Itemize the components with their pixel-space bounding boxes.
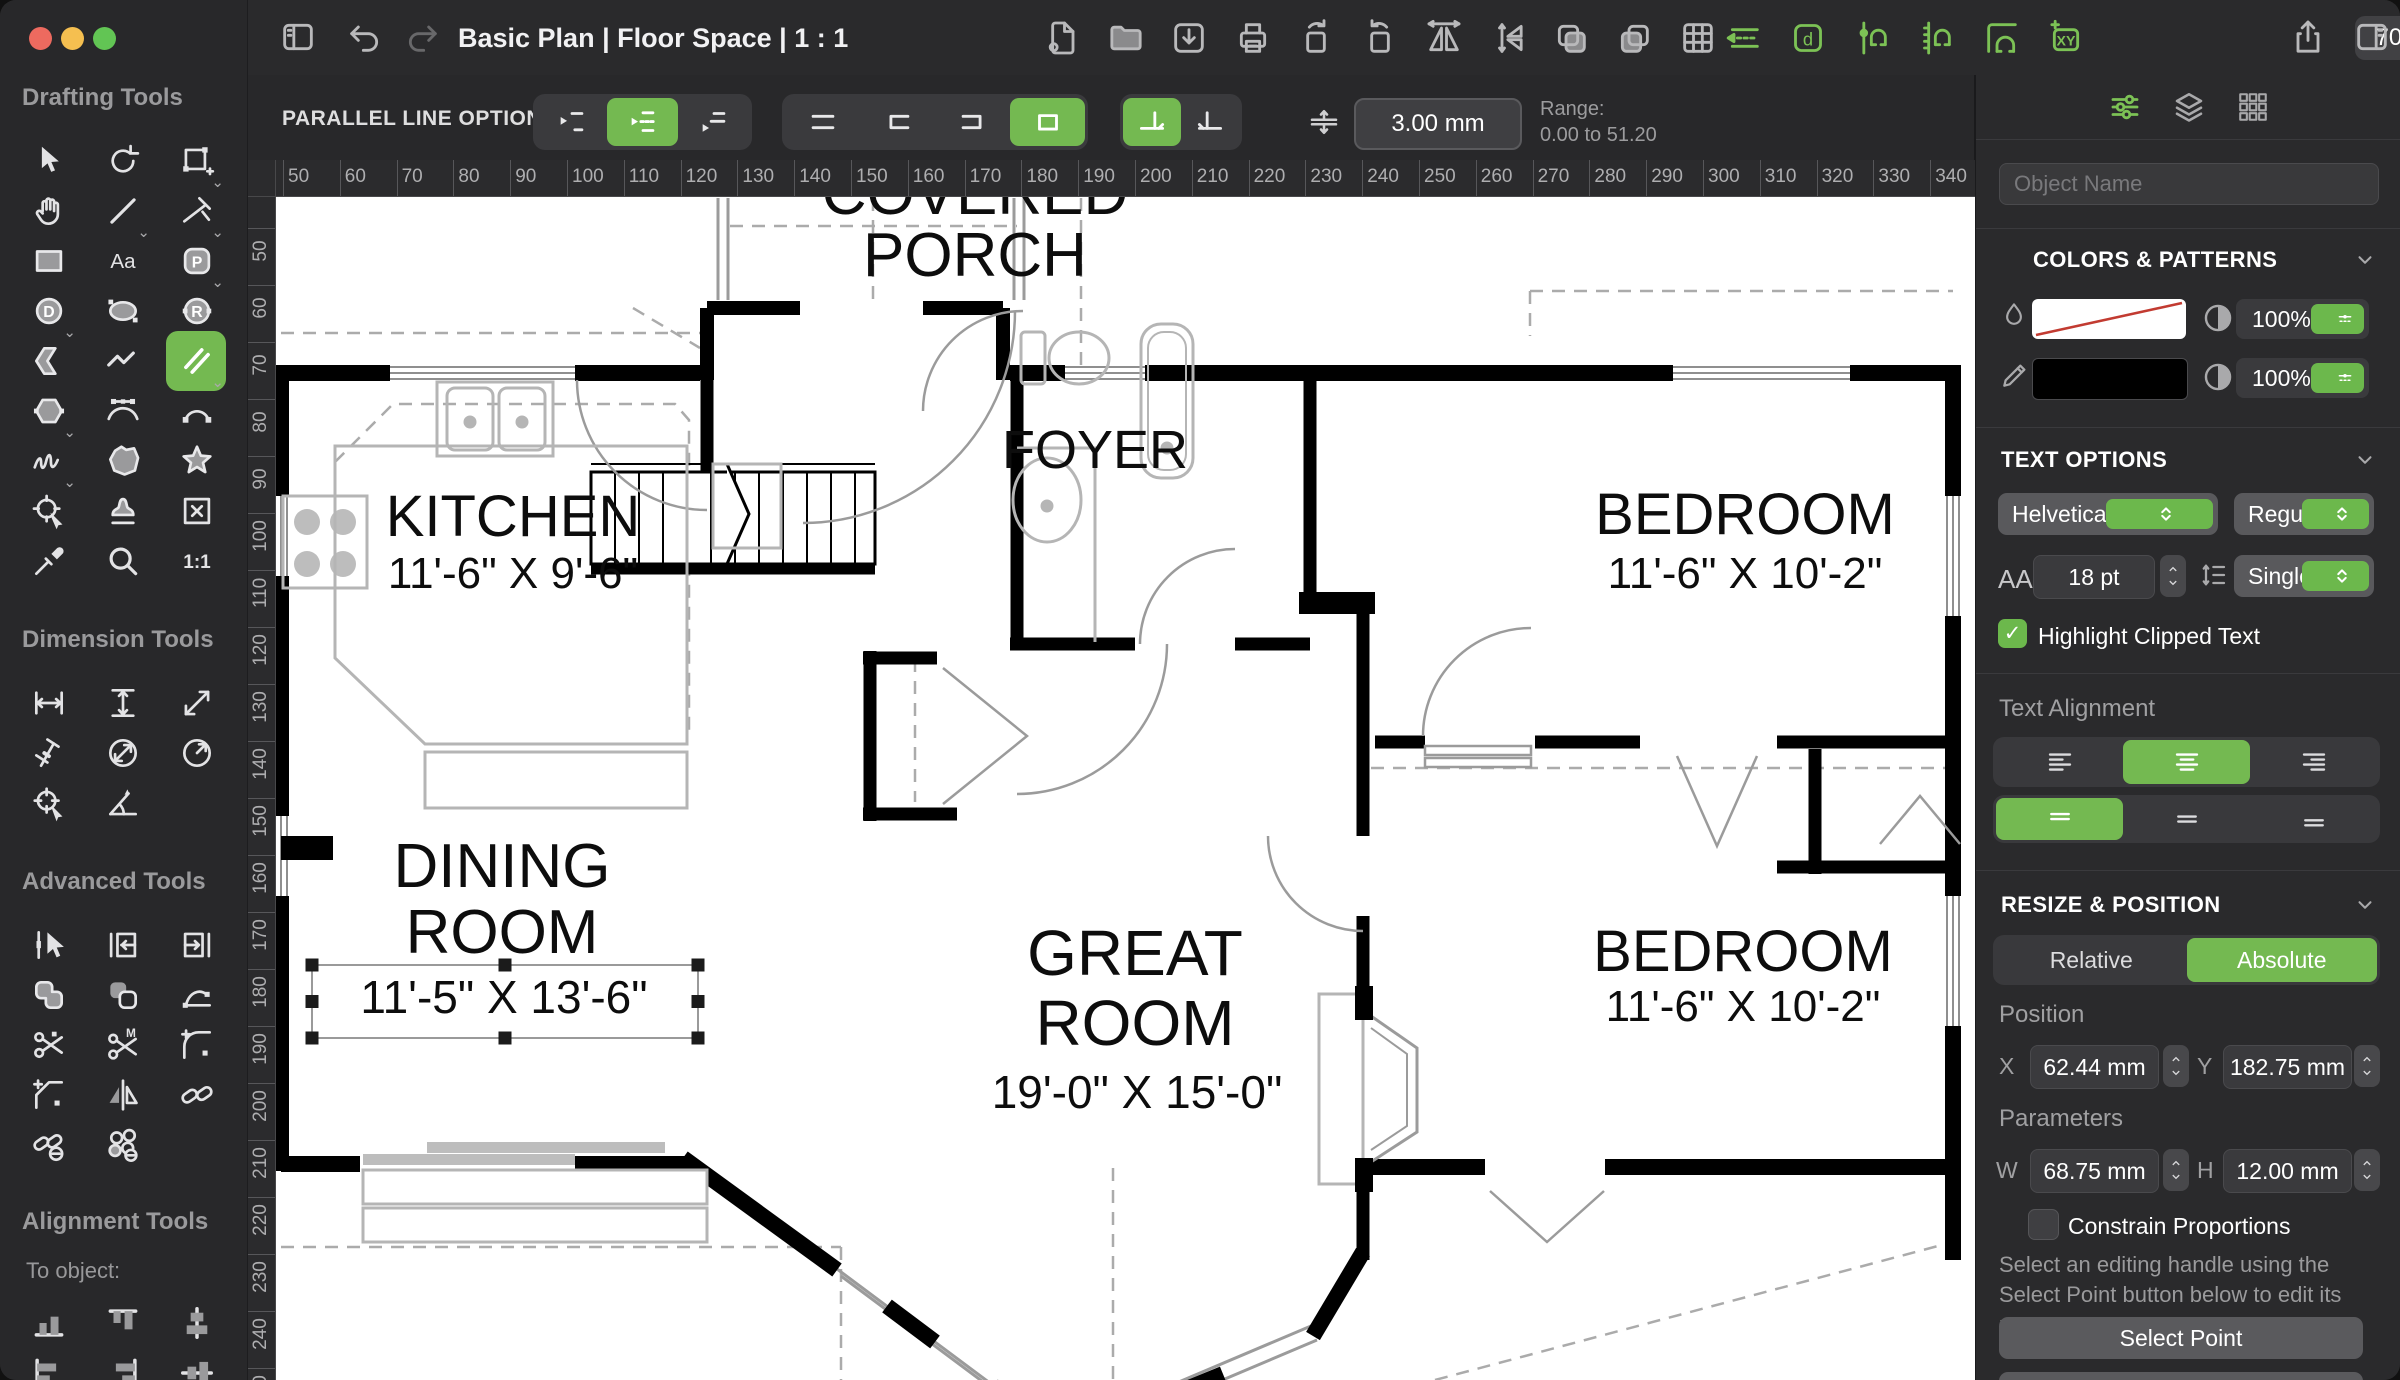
tool-dim-diagonal[interactable] xyxy=(160,678,234,728)
bezier-icon xyxy=(104,392,142,430)
section-title: Dimension Tools xyxy=(22,626,240,654)
offset-options-group xyxy=(533,94,752,150)
dim-angle-icon xyxy=(104,784,142,822)
constrain-proportions-checkbox[interactable] xyxy=(2028,1209,2059,1240)
font-size-label: AA xyxy=(1998,564,2033,595)
svg-text:R: R xyxy=(191,304,203,321)
flip-horizontal-button[interactable] xyxy=(1424,18,1464,58)
font-family-dropdown[interactable]: Helvetica Neue xyxy=(1998,493,2218,535)
spacing-range: Range: 0.00 to 51.20 xyxy=(1540,96,1657,148)
share-button[interactable] xyxy=(2288,17,2328,57)
duplicate-button[interactable] xyxy=(1614,18,1654,58)
range-value: 0.00 to 51.20 xyxy=(1540,122,1657,148)
tool-edit-select[interactable] xyxy=(12,920,86,970)
tool-align-top[interactable] xyxy=(86,1298,160,1348)
new-document-button[interactable] xyxy=(1042,18,1082,58)
offset-center-option-button[interactable] xyxy=(607,98,678,146)
copy-button[interactable] xyxy=(1551,18,1591,58)
tool-dim-diameter[interactable] xyxy=(86,728,160,778)
height-field[interactable]: 12.00 mm xyxy=(2223,1149,2352,1193)
tool-mirror[interactable] xyxy=(86,1070,160,1120)
line-icon xyxy=(104,192,142,230)
text-icon: Aa xyxy=(104,242,142,280)
relative-mode-button[interactable]: Relative xyxy=(1996,938,2187,982)
svg-text:XY: XY xyxy=(2057,33,2076,49)
tool-unlink[interactable] xyxy=(12,1120,86,1170)
snap-text-button[interactable]: d xyxy=(1788,18,1828,58)
shape-p-icon: P xyxy=(178,242,216,280)
room-labels: COVERED PORCH FOYER KITCHEN 11'-6" X 9'-… xyxy=(360,196,1894,1118)
svg-text:M: M xyxy=(126,1026,136,1040)
tool-one-to-one[interactable]: 1:1 xyxy=(160,536,234,586)
resize-collapse-chevron-icon[interactable] xyxy=(2354,894,2376,916)
tool-rectangle[interactable] xyxy=(12,236,86,286)
stroke-opacity-field[interactable]: 100% xyxy=(2236,358,2369,398)
great-room-label-line2[interactable]: ROOM xyxy=(1035,987,1234,1059)
stroke-swatch[interactable] xyxy=(2032,358,2188,400)
zoom-tool-icon xyxy=(104,542,142,580)
union-icon xyxy=(30,976,68,1014)
x-position-field[interactable]: 62.44 mm xyxy=(2030,1045,2159,1089)
detach-icon xyxy=(104,1126,142,1164)
options-bar-label: PARALLEL LINE OPTIONS xyxy=(282,107,557,131)
tool-multi-cut[interactable]: M xyxy=(86,1020,160,1070)
x-label: X xyxy=(1999,1053,2014,1080)
mirror-icon xyxy=(104,1076,142,1114)
kitchen-label[interactable]: KITCHEN xyxy=(386,484,641,549)
tool-rotate[interactable] xyxy=(86,136,160,186)
dim-horizontal-icon xyxy=(30,684,68,722)
fill-opacity-field[interactable]: 100% xyxy=(2236,299,2369,339)
rotate-left-button[interactable] xyxy=(1296,18,1336,58)
arrow-shape-icon xyxy=(30,342,68,380)
ends-closed-option-button[interactable] xyxy=(1010,98,1085,146)
inspector-panel: Object Name COLORS & PATTERNS 100% 100% … xyxy=(1975,75,2400,1380)
snap-xy-button[interactable]: XY xyxy=(2046,18,2086,58)
position-label: Position xyxy=(1999,1001,2084,1029)
rotate-icon xyxy=(104,142,142,180)
highlight-clipped-checkbox[interactable]: ✓ xyxy=(1998,619,2027,648)
dim-perpendicular-icon xyxy=(30,734,68,772)
align-bottom-icon xyxy=(30,1304,68,1342)
join-right-option-button[interactable] xyxy=(1181,98,1239,146)
text-options-header: TEXT OPTIONS xyxy=(2001,447,2167,473)
tab-grid-icon[interactable] xyxy=(2235,89,2271,125)
horizontal-ruler: 5060708090100110120130140150160170180190… xyxy=(275,160,1975,197)
snap-vertical-button[interactable] xyxy=(1853,18,1893,58)
stroke-contrast-icon[interactable] xyxy=(2201,360,2235,394)
join-left-option-button[interactable] xyxy=(1123,98,1181,146)
offset-bottom-option-button[interactable] xyxy=(678,98,749,146)
tool-stamp[interactable] xyxy=(86,486,160,536)
section-title: Drafting Tools xyxy=(22,84,240,112)
spacing-value-field[interactable]: 3.00 mm xyxy=(1354,98,1522,150)
dim-vertical-icon xyxy=(104,684,142,722)
snap-parallel-button[interactable] xyxy=(1724,18,1764,58)
highlight-clipped-label: Highlight Clipped Text xyxy=(2038,623,2260,650)
dim-center-icon xyxy=(30,784,68,822)
tool-options-bar: PARALLEL LINE OPTIONS 3.00 mm Range: 0.0… xyxy=(247,75,1975,160)
section-dimension-tools: Dimension Tools xyxy=(12,626,240,828)
tool-blob[interactable] xyxy=(86,436,160,486)
text-options-collapse-chevron-icon[interactable] xyxy=(2354,449,2376,471)
tool-parallel-line[interactable]: ⌄ xyxy=(160,336,234,386)
join-options-group xyxy=(1120,94,1242,150)
eyedropper-icon xyxy=(30,542,68,580)
y-position-stepper[interactable] xyxy=(2354,1045,2380,1087)
blob-icon xyxy=(104,442,142,480)
kitchen-dimensions[interactable]: 11'-6" X 9'-6" xyxy=(388,549,638,598)
tool-shape-p[interactable]: P⌄ xyxy=(160,236,234,286)
offset-top-option-button[interactable] xyxy=(536,98,607,146)
fill-swatch[interactable] xyxy=(2032,299,2186,339)
align-right-icon xyxy=(104,1354,142,1380)
tool-pan[interactable] xyxy=(12,186,86,236)
align-text-center-button[interactable] xyxy=(2123,740,2250,784)
range-label: Range: xyxy=(1540,96,1657,122)
tool-polyline[interactable] xyxy=(86,336,160,386)
tool-position[interactable] xyxy=(12,486,86,536)
parameters-label: Parameters xyxy=(1999,1105,2123,1133)
arc-icon xyxy=(178,392,216,430)
vertical-ruler: 5060708090100110120130140150160170180190… xyxy=(247,196,276,1380)
font-style-stepper[interactable] xyxy=(2302,499,2370,529)
font-size-stepper[interactable] xyxy=(2160,555,2186,597)
tool-extend-right[interactable] xyxy=(160,920,234,970)
dim-diagonal-icon xyxy=(178,684,216,722)
ellipse-icon xyxy=(104,292,142,330)
tool-arc[interactable] xyxy=(160,386,234,436)
width-stepper[interactable] xyxy=(2163,1149,2189,1191)
parallel-line-icon xyxy=(178,342,216,380)
width-field[interactable]: 68.75 mm xyxy=(2030,1149,2159,1193)
section-drafting-tools: Drafting Tools⌄⌄⌄AaP⌄D⌄R⌄⌄⌄⌄1:1 xyxy=(12,84,240,586)
right-panel-toggle-button[interactable] xyxy=(2352,17,2392,57)
h-label: H xyxy=(2197,1157,2214,1184)
position-icon xyxy=(30,492,68,530)
bedroom2-dimensions[interactable]: 11'-6" X 10'-2" xyxy=(1606,982,1881,1031)
object-name-input[interactable]: Object Name xyxy=(1999,163,2379,205)
covered-porch-label-line2[interactable]: PORCH xyxy=(863,221,1087,290)
tool-select[interactable] xyxy=(12,136,86,186)
constrain-proportions-label: Constrain Proportions xyxy=(2068,1213,2290,1240)
apply-button[interactable]: Apply xyxy=(1999,1372,2363,1380)
table-button[interactable] xyxy=(1678,18,1718,58)
align-center-vertical-icon xyxy=(178,1354,216,1380)
y-label: Y xyxy=(2197,1053,2212,1080)
svg-text:Aa: Aa xyxy=(110,250,136,273)
height-stepper[interactable] xyxy=(2354,1149,2380,1191)
svg-text:P: P xyxy=(192,254,203,271)
align-text-middle-button[interactable] xyxy=(2123,798,2250,840)
end-cap-options-group xyxy=(782,94,1088,150)
align-text-top-button[interactable] xyxy=(1996,798,2123,840)
tool-dim-horizontal[interactable] xyxy=(12,678,86,728)
closet-wall-chunk xyxy=(1299,592,1375,614)
w-label: W xyxy=(1996,1157,2018,1184)
to-object-label: To object: xyxy=(26,1258,240,1284)
subtract-icon xyxy=(104,976,142,1014)
tool-align-right[interactable] xyxy=(86,1348,160,1380)
tool-bezier[interactable] xyxy=(86,386,160,436)
print-button[interactable] xyxy=(1233,18,1273,58)
tool-dim-radius[interactable] xyxy=(160,728,234,778)
tool-hexagon[interactable]: ⌄ xyxy=(12,386,86,436)
tool-fillet[interactable] xyxy=(160,1020,234,1070)
zoom-window-button[interactable] xyxy=(93,27,116,50)
sidebar-toggle-button[interactable] xyxy=(278,17,318,57)
ends-right-option-button[interactable] xyxy=(935,98,1010,146)
section-advanced-tools: Advanced ToolsM xyxy=(12,868,240,1170)
tool-chamfer[interactable] xyxy=(12,1070,86,1120)
edit-select-icon xyxy=(30,926,68,964)
freehand-icon xyxy=(30,442,68,480)
tool-dim-perpendicular[interactable] xyxy=(12,728,86,778)
document-title: Basic Plan | Floor Space | 1 : 1 xyxy=(458,23,848,54)
tool-subtract[interactable] xyxy=(86,970,160,1020)
text-alignment-label: Text Alignment xyxy=(1999,695,2155,723)
align-left-icon xyxy=(30,1354,68,1380)
tool-star[interactable] xyxy=(160,436,234,486)
tool-delete-box[interactable] xyxy=(160,486,234,536)
section-alignment-tools: Alignment ToolsTo object: xyxy=(12,1208,240,1380)
open-folder-button[interactable] xyxy=(1106,18,1146,58)
crop-icon xyxy=(178,142,216,180)
trim-icon xyxy=(178,192,216,230)
title-bar: Basic Plan | Floor Space | 1 : 1 dXY 70.… xyxy=(247,0,2400,75)
star-icon xyxy=(178,442,216,480)
snap-corner-button[interactable] xyxy=(1982,18,2022,58)
colors-collapse-chevron-icon[interactable] xyxy=(2354,249,2376,271)
line-spacing-icon xyxy=(2198,559,2230,591)
resize-position-header: RESIZE & POSITION xyxy=(2001,892,2221,918)
import-button[interactable] xyxy=(1169,18,1209,58)
dim-diameter-icon xyxy=(104,734,142,772)
unlink-icon xyxy=(30,1126,68,1164)
select-icon xyxy=(30,142,68,180)
tool-dim-angle[interactable] xyxy=(86,778,160,828)
chamfer-icon xyxy=(30,1076,68,1114)
absolute-mode-button[interactable]: Absolute xyxy=(2187,938,2378,982)
multi-cut-icon: M xyxy=(104,1026,142,1064)
tool-extend-left[interactable] xyxy=(86,920,160,970)
vertical-text-alignment xyxy=(1993,795,2380,843)
link-icon xyxy=(178,1076,216,1114)
minimize-window-button[interactable] xyxy=(61,27,84,50)
snap-horizontal-button[interactable] xyxy=(1917,18,1957,58)
flip-vertical-button[interactable] xyxy=(1487,18,1527,58)
y-position-field[interactable]: 182.75 mm xyxy=(2223,1045,2352,1089)
ends-open-option-button[interactable] xyxy=(785,98,860,146)
tool-arrow-shape[interactable] xyxy=(12,336,86,386)
tool-align-left[interactable] xyxy=(12,1348,86,1380)
circle-r-icon: R xyxy=(178,292,216,330)
fill-opacity-sliders-button[interactable] xyxy=(2311,304,2364,334)
font-style-dropdown[interactable]: Regular xyxy=(2234,493,2374,535)
tools-sidebar: Drafting Tools⌄⌄⌄AaP⌄D⌄R⌄⌄⌄⌄1:1Dimension… xyxy=(0,0,248,1380)
tool-align-center-vertical[interactable] xyxy=(160,1348,234,1380)
tool-eyedropper[interactable] xyxy=(12,536,86,586)
select-point-button[interactable]: Select Point xyxy=(1999,1317,2363,1359)
fill-contrast-icon[interactable] xyxy=(2201,301,2235,335)
tool-cut[interactable] xyxy=(12,1020,86,1070)
application-window: Basic Plan | Floor Space | 1 : 1 dXY 70.… xyxy=(0,0,2400,1380)
dim-radius-icon xyxy=(178,734,216,772)
delete-box-icon xyxy=(178,492,216,530)
tab-layers-icon[interactable] xyxy=(2171,89,2207,125)
line-spacing-dropdown[interactable]: Single xyxy=(2234,555,2374,597)
stamp-icon xyxy=(104,492,142,530)
tool-link[interactable] xyxy=(160,1070,234,1120)
horizontal-text-alignment xyxy=(1993,737,2380,787)
pan-icon xyxy=(30,192,68,230)
tool-freehand[interactable]: ⌄ xyxy=(12,436,86,486)
align-text-bottom-button[interactable] xyxy=(2250,798,2377,840)
dining-room-label-line1[interactable]: DINING xyxy=(394,832,611,901)
stroke-pencil-icon xyxy=(1999,358,2031,392)
tool-trim[interactable]: ⌄ xyxy=(160,186,234,236)
polyline-icon xyxy=(104,342,142,380)
tool-zoom-tool[interactable] xyxy=(86,536,160,586)
snap-toolbar: dXY xyxy=(1724,0,2086,75)
ends-left-option-button[interactable] xyxy=(860,98,935,146)
tool-dim-center[interactable] xyxy=(12,778,86,828)
tool-ellipse[interactable] xyxy=(86,286,160,336)
align-top-icon xyxy=(104,1304,142,1342)
foyer-entry-walls xyxy=(707,308,1003,380)
spacing-icon xyxy=(1306,102,1342,142)
extend-right-icon xyxy=(178,926,216,964)
svg-text:d: d xyxy=(1803,28,1813,49)
undo-button[interactable] xyxy=(345,17,385,57)
tool-detach[interactable] xyxy=(86,1120,160,1170)
stroke-opacity-sliders-button[interactable] xyxy=(2311,363,2364,393)
section-title: Alignment Tools xyxy=(22,1208,240,1236)
left-wall-stub xyxy=(281,836,333,860)
redo-button[interactable] xyxy=(402,17,442,57)
tool-text[interactable]: Aa xyxy=(86,236,160,286)
x-position-stepper[interactable] xyxy=(2163,1045,2189,1087)
tool-dim-vertical[interactable] xyxy=(86,678,160,728)
fillet-icon xyxy=(178,1026,216,1064)
svg-text:D: D xyxy=(43,304,54,321)
tool-circle-d[interactable]: D⌄ xyxy=(12,286,86,336)
colors-patterns-header: COLORS & PATTERNS xyxy=(2033,247,2277,273)
hexagon-icon xyxy=(30,392,68,430)
tool-align-center-horizontal[interactable] xyxy=(160,1298,234,1348)
align-text-right-button[interactable] xyxy=(2250,740,2377,784)
reshape-icon xyxy=(178,976,216,1014)
tool-union[interactable] xyxy=(12,970,86,1020)
circle-d-icon: D xyxy=(30,292,68,330)
inspector-tabs xyxy=(1976,75,2400,139)
dining-room-label-line2[interactable]: ROOM xyxy=(406,898,599,967)
great-room-label-line1[interactable]: GREAT xyxy=(1027,917,1243,989)
font-size-field[interactable]: 18 pt xyxy=(2033,555,2155,599)
tool-crop[interactable]: ⌄ xyxy=(160,136,234,186)
rotate-right-button[interactable] xyxy=(1360,18,1400,58)
drawing-canvas[interactable]: COVERED PORCH FOYER KITCHEN 11'-6" X 9'-… xyxy=(275,196,1975,1380)
bedroom1-label[interactable]: BEDROOM xyxy=(1595,482,1895,547)
foyer-label[interactable]: FOYER xyxy=(1002,420,1188,480)
close-window-button[interactable] xyxy=(29,27,52,50)
dining-room-dimensions[interactable]: 11'-5" X 13'-6" xyxy=(360,971,647,1023)
ruler-corner xyxy=(247,160,276,197)
coordinate-mode-toggle: Relative Absolute xyxy=(1993,935,2380,985)
font-family-stepper[interactable] xyxy=(2106,499,2214,529)
tool-align-bottom[interactable] xyxy=(12,1298,86,1348)
tool-reshape[interactable] xyxy=(160,970,234,1020)
fill-droplet-icon xyxy=(1999,297,2029,333)
bedroom1-dimensions[interactable]: 11'-6" X 10'-2" xyxy=(1608,549,1883,598)
tool-circle-r[interactable]: R⌄ xyxy=(160,286,234,336)
floor-plan: COVERED PORCH FOYER KITCHEN 11'-6" X 9'-… xyxy=(275,196,1975,1380)
cut-icon xyxy=(30,1026,68,1064)
line-spacing-stepper[interactable] xyxy=(2302,561,2370,591)
section-title: Advanced Tools xyxy=(22,868,240,896)
great-room-dimensions[interactable]: 19'-0" X 15'-0" xyxy=(992,1066,1283,1118)
rectangle-icon xyxy=(30,242,68,280)
tool-line[interactable]: ⌄ xyxy=(86,186,160,236)
tab-style-icon[interactable] xyxy=(2107,89,2143,125)
svg-text:1:1: 1:1 xyxy=(183,552,211,573)
bedroom2-label[interactable]: BEDROOM xyxy=(1593,919,1893,984)
align-text-left-button[interactable] xyxy=(1996,740,2123,784)
one-to-one-icon: 1:1 xyxy=(178,542,216,580)
document-toolbar xyxy=(1042,0,1718,75)
extend-left-icon xyxy=(104,926,142,964)
align-center-horizontal-icon xyxy=(178,1304,216,1342)
